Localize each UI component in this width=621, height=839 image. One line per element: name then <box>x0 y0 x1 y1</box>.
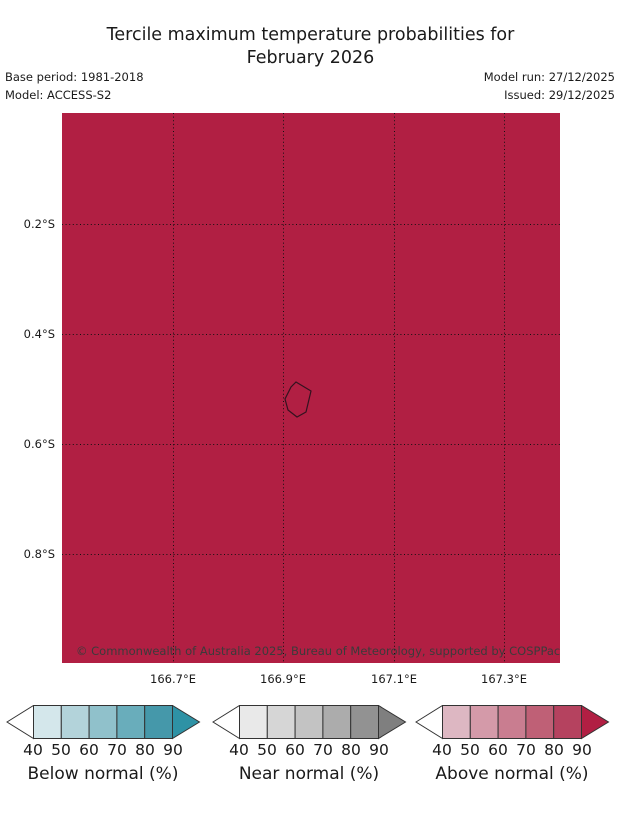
y-tick-label: 0.2°S <box>0 216 55 232</box>
map-canvas: © Commonwealth of Australia 2025, Bureau… <box>62 113 560 663</box>
legend-arrow-right <box>582 706 609 739</box>
legend-tick: 40 <box>432 741 452 759</box>
legend-label: Below normal (%) <box>28 763 179 785</box>
legend-arrow-left <box>213 706 240 739</box>
model-run-text: Model run: 27/12/2025 <box>484 70 615 84</box>
legend-tick: 60 <box>285 741 305 759</box>
model-text: Model: ACCESS-S2 <box>5 88 111 102</box>
colorbar-segment <box>145 706 173 739</box>
legend-tick: 90 <box>572 741 592 759</box>
legend-tick: 80 <box>341 741 361 759</box>
legend-above-normal: 40 50 60 70 80 90 Above normal (%) <box>415 705 615 795</box>
colorbar-segment <box>351 706 379 739</box>
copyright-text: © Commonwealth of Australia 2025, Bureau… <box>76 644 560 658</box>
colorbar-segment <box>470 706 498 739</box>
legend-tick: 70 <box>313 741 333 759</box>
grid-overlay <box>62 113 560 663</box>
legend-tick: 50 <box>460 741 480 759</box>
x-tick-label: 167.3°E <box>464 672 544 686</box>
legend-label: Near normal (%) <box>239 763 379 785</box>
legend-tick: 40 <box>229 741 249 759</box>
legend-ticks: 40 50 60 70 80 90 <box>6 741 206 759</box>
legend-ticks: 40 50 60 70 80 90 <box>212 741 412 759</box>
figure-root: Tercile maximum temperature probabilitie… <box>0 0 621 839</box>
legend-arrow-left <box>7 706 34 739</box>
colorbar-segment <box>89 706 117 739</box>
legend-arrow-left <box>416 706 443 739</box>
x-tick-label: 167.1°E <box>354 672 434 686</box>
legend-tick: 40 <box>23 741 43 759</box>
colorbar-segment <box>240 706 268 739</box>
legend-arrow-right <box>379 706 406 739</box>
colorbar-segment <box>323 706 351 739</box>
y-tick-label: 0.4°S <box>0 326 55 342</box>
base-period-text: Base period: 1981-2018 <box>5 70 144 84</box>
legend-label: Above normal (%) <box>435 763 588 785</box>
colorbar-segment <box>117 706 145 739</box>
legend-tick: 70 <box>516 741 536 759</box>
colorbar-svg <box>6 705 202 740</box>
legend-below-normal: 40 50 60 70 80 90 Below normal (%) <box>6 705 206 795</box>
legend-tick: 90 <box>369 741 389 759</box>
legend-tick: 70 <box>107 741 127 759</box>
colorbar-segment <box>498 706 526 739</box>
legend-tick: 60 <box>79 741 99 759</box>
colorbar-segment <box>61 706 89 739</box>
y-tick-label: 0.6°S <box>0 436 55 452</box>
colorbar-segment <box>443 706 471 739</box>
colorbar-segment <box>295 706 323 739</box>
legend-tick: 90 <box>163 741 183 759</box>
colorbar-segment <box>526 706 554 739</box>
legend-tick: 60 <box>488 741 508 759</box>
chart-title: Tercile maximum temperature probabilitie… <box>0 24 621 70</box>
colorbar-segment <box>554 706 582 739</box>
island-outline <box>285 382 311 417</box>
legend-near-normal: 40 50 60 70 80 90 Near normal (%) <box>212 705 412 795</box>
y-tick-label: 0.8°S <box>0 546 55 562</box>
legend-arrow-right <box>173 706 200 739</box>
legend-ticks: 40 50 60 70 80 90 <box>415 741 615 759</box>
colorbar-svg <box>415 705 611 740</box>
legend-tick: 80 <box>135 741 155 759</box>
x-tick-label: 166.7°E <box>133 672 213 686</box>
colorbar-segment <box>267 706 295 739</box>
legend-tick: 50 <box>51 741 71 759</box>
x-tick-label: 166.9°E <box>243 672 323 686</box>
colorbar-svg <box>212 705 408 740</box>
colorbar-segment <box>34 706 62 739</box>
legend-tick: 80 <box>544 741 564 759</box>
legend-tick: 50 <box>257 741 277 759</box>
issued-text: Issued: 29/12/2025 <box>504 88 615 102</box>
